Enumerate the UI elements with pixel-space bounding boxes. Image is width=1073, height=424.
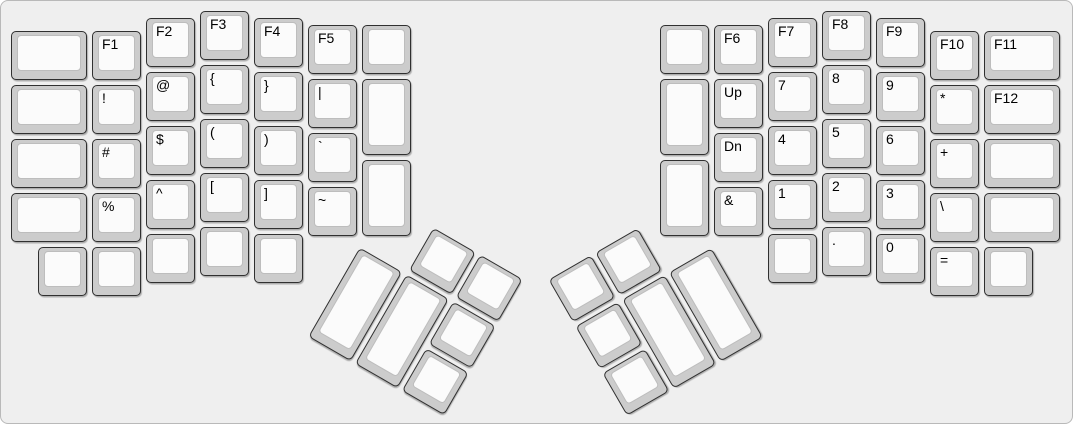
- key-asterisk[interactable]: *: [930, 85, 979, 134]
- key-9-top-surface: 9: [882, 76, 919, 112]
- key-rbrace[interactable]: }: [254, 72, 303, 121]
- key-f3[interactable]: F3: [200, 11, 249, 60]
- key-blank-l4-r4-top-surface: [260, 238, 297, 274]
- key-blank-l0-r0-top-surface: [17, 35, 81, 71]
- key-up[interactable]: Up: [714, 79, 763, 128]
- key-percent-top-surface: %: [98, 197, 135, 233]
- key-7-top-surface: 7: [774, 76, 811, 112]
- key-blank-l-bottom-top-surface: [44, 251, 81, 287]
- key-left-thumb-top2-top-surface: [465, 261, 515, 311]
- key-f11[interactable]: F11: [984, 31, 1060, 80]
- key-f1[interactable]: F1: [92, 31, 141, 80]
- key-0-top-surface: 0: [882, 238, 919, 274]
- key-blank-r6-r2[interactable]: [984, 139, 1060, 188]
- key-dollar[interactable]: $: [146, 126, 195, 175]
- key-rbracket-label: ]: [264, 186, 268, 201]
- key-f1-label: F1: [102, 37, 118, 52]
- keyboard-canvas: F1!#%F2@$^F3{([F4})]F5|`~F6UpDn&F7741F88…: [0, 0, 1073, 424]
- key-7-label: 7: [778, 78, 786, 93]
- key-6-top-surface: 6: [882, 130, 919, 166]
- key-backtick[interactable]: `: [308, 133, 357, 182]
- key-asterisk-label: *: [940, 91, 945, 106]
- key-blank-l0-r3-top-surface: [17, 197, 81, 233]
- key-3-label: 3: [886, 186, 894, 201]
- key-lparen-label: (: [210, 125, 215, 140]
- key-f4-top-surface: F4: [260, 22, 297, 58]
- key-f9[interactable]: F9: [876, 18, 925, 67]
- key-5-top-surface: 5: [828, 123, 865, 159]
- key-up-top-surface: Up: [720, 83, 757, 119]
- key-f2[interactable]: F2: [146, 18, 195, 67]
- key-left-thumb-side1-top-surface: [438, 308, 488, 358]
- key-lbracket-label: [: [210, 179, 214, 194]
- key-right-thumb-top1-top-surface: [556, 262, 606, 312]
- key-4[interactable]: 4: [768, 126, 817, 175]
- key-ampersand-top-surface: &: [720, 191, 757, 227]
- key-ampersand-label: &: [724, 193, 733, 208]
- key-lbrace-top-surface: {: [206, 69, 243, 105]
- key-f12-top-surface: F12: [990, 89, 1054, 125]
- key-blank-l0-r2[interactable]: [11, 139, 87, 188]
- key-f3-top-surface: F3: [206, 15, 243, 51]
- key-right-thumb-top2-top-surface: [602, 235, 652, 285]
- key-rbracket[interactable]: ]: [254, 180, 303, 229]
- key-rbrace-label: }: [264, 78, 269, 93]
- key-blank-r0-tall2-top-surface: [666, 164, 703, 227]
- key-equals[interactable]: =: [930, 247, 979, 296]
- key-caret[interactable]: ^: [146, 180, 195, 229]
- key-f11-top-surface: F11: [990, 35, 1054, 71]
- key-lbracket[interactable]: [: [200, 173, 249, 222]
- key-blank-l0-r2-top-surface: [17, 143, 81, 179]
- key-3-top-surface: 3: [882, 184, 919, 220]
- key-blank-r6-r4[interactable]: [984, 247, 1033, 296]
- key-f8-label: F8: [832, 17, 848, 32]
- key-4-label: 4: [778, 132, 786, 147]
- key-3[interactable]: 3: [876, 180, 925, 229]
- key-backtick-label: `: [318, 139, 323, 154]
- key-percent[interactable]: %: [92, 193, 141, 242]
- key-ampersand[interactable]: &: [714, 187, 763, 236]
- key-f4-label: F4: [264, 24, 280, 39]
- key-blank-l6-tall1[interactable]: [362, 79, 411, 155]
- key-5[interactable]: 5: [822, 119, 871, 168]
- key-at[interactable]: @: [146, 72, 195, 121]
- key-at-label: @: [156, 78, 170, 93]
- key-blank-l0-r3[interactable]: [11, 193, 87, 242]
- key-tilde-label: ~: [318, 193, 326, 208]
- key-blank-l0-r1-top-surface: [17, 89, 81, 125]
- key-f7-top-surface: F7: [774, 22, 811, 58]
- key-blank-r0-tall2[interactable]: [660, 160, 709, 236]
- key-pipe-label: |: [318, 85, 322, 100]
- key-blank-l2-r4[interactable]: [146, 234, 195, 283]
- key-backslash[interactable]: \: [930, 193, 979, 242]
- key-hash-label: #: [102, 145, 110, 160]
- key-blank-r2-r4-top-surface: [774, 238, 811, 274]
- key-rbrace-top-surface: }: [260, 76, 297, 112]
- key-at-top-surface: @: [152, 76, 189, 112]
- key-8[interactable]: 8: [822, 65, 871, 114]
- key-f2-top-surface: F2: [152, 22, 189, 58]
- key-left-thumb-top1-top-surface: [419, 234, 469, 284]
- key-2-top-surface: 2: [828, 177, 865, 213]
- key-equals-label: =: [940, 253, 948, 268]
- key-blank-l0-r1[interactable]: [11, 85, 87, 134]
- key-rparen[interactable]: ): [254, 126, 303, 175]
- key-blank-r2-r4[interactable]: [768, 234, 817, 283]
- key-rparen-top-surface: ): [260, 130, 297, 166]
- key-5-label: 5: [832, 125, 840, 140]
- key-rbracket-top-surface: ]: [260, 184, 297, 220]
- key-dn-top-surface: Dn: [720, 137, 757, 173]
- key-left-thumb-side2-top-surface: [411, 355, 461, 405]
- key-f12-label: F12: [994, 91, 1018, 106]
- key-blank-r6-r2-top-surface: [990, 143, 1054, 179]
- key-0-label: 0: [886, 240, 894, 255]
- key-lbracket-top-surface: [: [206, 177, 243, 213]
- key-exclamation-label: !: [102, 91, 106, 106]
- key-f5-label: F5: [318, 31, 334, 46]
- key-backslash-top-surface: \: [936, 197, 973, 233]
- key-backtick-top-surface: `: [314, 137, 351, 173]
- key-blank-r0-r0[interactable]: [660, 25, 709, 74]
- key-blank-l1-r4-top-surface: [98, 251, 135, 287]
- key-7[interactable]: 7: [768, 72, 817, 121]
- key-blank-r0-tall1[interactable]: [660, 79, 709, 155]
- key-f1-top-surface: F1: [98, 35, 135, 71]
- key-1-label: 1: [778, 186, 786, 201]
- key-pipe[interactable]: |: [308, 79, 357, 128]
- key-2[interactable]: 2: [822, 173, 871, 222]
- key-hash-top-surface: #: [98, 143, 135, 179]
- key-blank-l6-tall2-top-surface: [368, 164, 405, 227]
- key-plus-label: +: [940, 145, 948, 160]
- key-f6-label: F6: [724, 31, 740, 46]
- key-f7-label: F7: [778, 24, 794, 39]
- key-exclamation-top-surface: !: [98, 89, 135, 125]
- key-blank-l1-r4[interactable]: [92, 247, 141, 296]
- key-f10-top-surface: F10: [936, 35, 973, 71]
- key-caret-top-surface: ^: [152, 184, 189, 220]
- key-f3-label: F3: [210, 17, 226, 32]
- key-percent-label: %: [102, 199, 114, 214]
- key-f8-top-surface: F8: [828, 15, 865, 51]
- key-blank-l6-tall2[interactable]: [362, 160, 411, 236]
- key-9[interactable]: 9: [876, 72, 925, 121]
- key-lparen[interactable]: (: [200, 119, 249, 168]
- key-blank-r6-r3[interactable]: [984, 193, 1060, 242]
- key-blank-l0-r0[interactable]: [11, 31, 87, 80]
- key-f9-top-surface: F9: [882, 22, 919, 58]
- key-f12[interactable]: F12: [984, 85, 1060, 134]
- key-f2-label: F2: [156, 24, 172, 39]
- key-period[interactable]: .: [822, 227, 871, 276]
- key-4-top-surface: 4: [774, 130, 811, 166]
- key-f6-top-surface: F6: [720, 29, 757, 65]
- key-blank-l3-r4-top-surface: [206, 231, 243, 267]
- key-f6[interactable]: F6: [714, 25, 763, 74]
- key-blank-l4-r4[interactable]: [254, 234, 303, 283]
- key-1-top-surface: 1: [774, 184, 811, 220]
- key-f10-label: F10: [940, 37, 964, 52]
- key-pipe-top-surface: |: [314, 83, 351, 119]
- key-blank-r0-tall1-top-surface: [666, 83, 703, 146]
- key-right-thumb-side1-top-surface: [583, 308, 633, 358]
- key-plus-top-surface: +: [936, 143, 973, 179]
- key-6-label: 6: [886, 132, 894, 147]
- key-f7[interactable]: F7: [768, 18, 817, 67]
- key-f10[interactable]: F10: [930, 31, 979, 80]
- key-exclamation[interactable]: !: [92, 85, 141, 134]
- key-period-top-surface: .: [828, 231, 865, 267]
- key-blank-l6-r0-top-surface: [368, 29, 405, 65]
- key-dollar-top-surface: $: [152, 130, 189, 166]
- key-f9-label: F9: [886, 24, 902, 39]
- key-up-label: Up: [724, 85, 742, 100]
- key-rparen-label: ): [264, 132, 269, 147]
- key-dn[interactable]: Dn: [714, 133, 763, 182]
- key-caret-label: ^: [156, 186, 163, 201]
- key-blank-r0-r0-top-surface: [666, 29, 703, 65]
- key-blank-r6-r3-top-surface: [990, 197, 1054, 233]
- key-f4[interactable]: F4: [254, 18, 303, 67]
- key-blank-l2-r4-top-surface: [152, 238, 189, 274]
- key-f11-label: F11: [994, 37, 1017, 52]
- key-dn-label: Dn: [724, 139, 742, 154]
- key-hash[interactable]: #: [92, 139, 141, 188]
- key-8-label: 8: [832, 71, 840, 86]
- key-f5[interactable]: F5: [308, 25, 357, 74]
- key-blank-l6-tall1-top-surface: [368, 83, 405, 146]
- key-blank-l6-r0[interactable]: [362, 25, 411, 74]
- key-asterisk-top-surface: *: [936, 89, 973, 125]
- key-dollar-label: $: [156, 132, 164, 147]
- key-tilde[interactable]: ~: [308, 187, 357, 236]
- key-f8[interactable]: F8: [822, 11, 871, 60]
- key-0[interactable]: 0: [876, 234, 925, 283]
- key-lbrace[interactable]: {: [200, 65, 249, 114]
- key-plus[interactable]: +: [930, 139, 979, 188]
- key-period-label: .: [832, 233, 836, 248]
- key-backslash-label: \: [940, 199, 944, 214]
- key-lparen-top-surface: (: [206, 123, 243, 159]
- key-2-label: 2: [832, 179, 840, 194]
- key-8-top-surface: 8: [828, 69, 865, 105]
- key-6[interactable]: 6: [876, 126, 925, 175]
- key-f5-top-surface: F5: [314, 29, 351, 65]
- key-right-thumb-side2-top-surface: [610, 355, 660, 405]
- key-blank-l-bottom[interactable]: [38, 247, 87, 296]
- key-blank-r6-r4-top-surface: [990, 251, 1027, 287]
- key-tilde-top-surface: ~: [314, 191, 351, 227]
- key-lbrace-label: {: [210, 71, 215, 86]
- key-equals-top-surface: =: [936, 251, 973, 287]
- key-1[interactable]: 1: [768, 180, 817, 229]
- key-blank-l3-r4[interactable]: [200, 227, 249, 276]
- key-9-label: 9: [886, 78, 894, 93]
